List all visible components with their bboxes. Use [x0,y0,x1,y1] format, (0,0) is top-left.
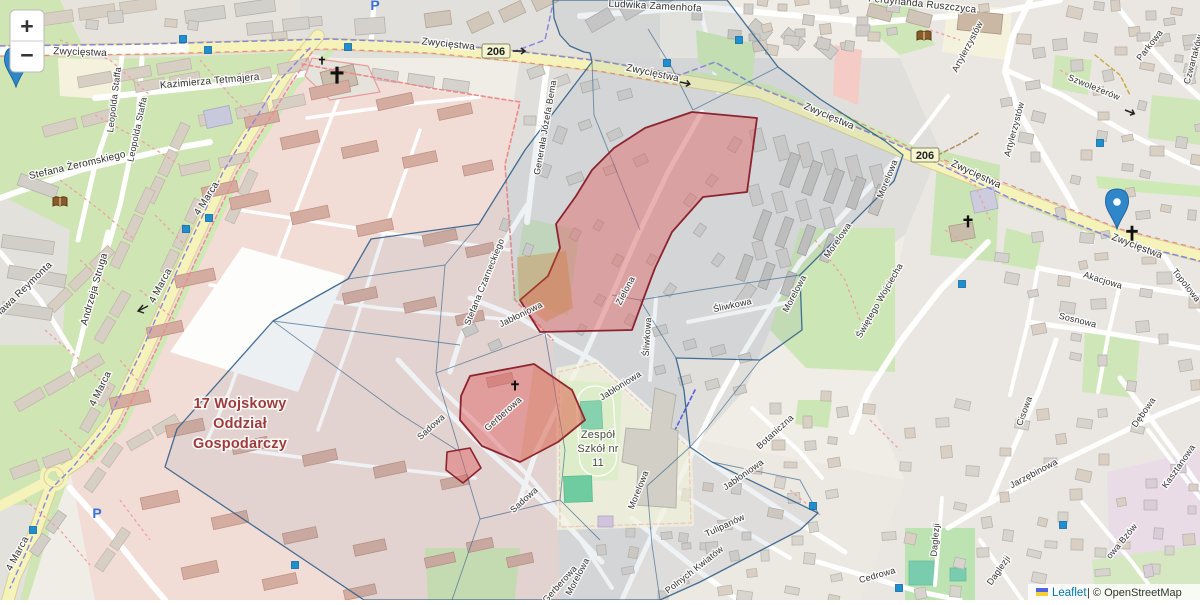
svg-text:+: + [20,13,33,39]
svg-text:17 Wojskowy: 17 Wojskowy [194,396,287,412]
svg-text:Leaflet: Leaflet [1052,587,1087,599]
svg-text:| © OpenStreetMap: | © OpenStreetMap [1087,587,1182,599]
svg-text:11: 11 [592,457,604,469]
svg-text:Oddział: Oddział [213,416,267,432]
svg-text:P: P [370,0,379,13]
svg-text:Szkół nr: Szkół nr [577,443,618,455]
svg-text:206: 206 [487,46,505,58]
svg-text:Zwycięstwa: Zwycięstwa [53,46,107,59]
svg-text:Gospodarczy: Gospodarczy [193,436,287,452]
svg-text:Zespół: Zespół [581,429,616,441]
svg-text:−: − [20,42,33,68]
svg-text:206: 206 [916,150,934,162]
svg-text:P: P [92,505,101,521]
